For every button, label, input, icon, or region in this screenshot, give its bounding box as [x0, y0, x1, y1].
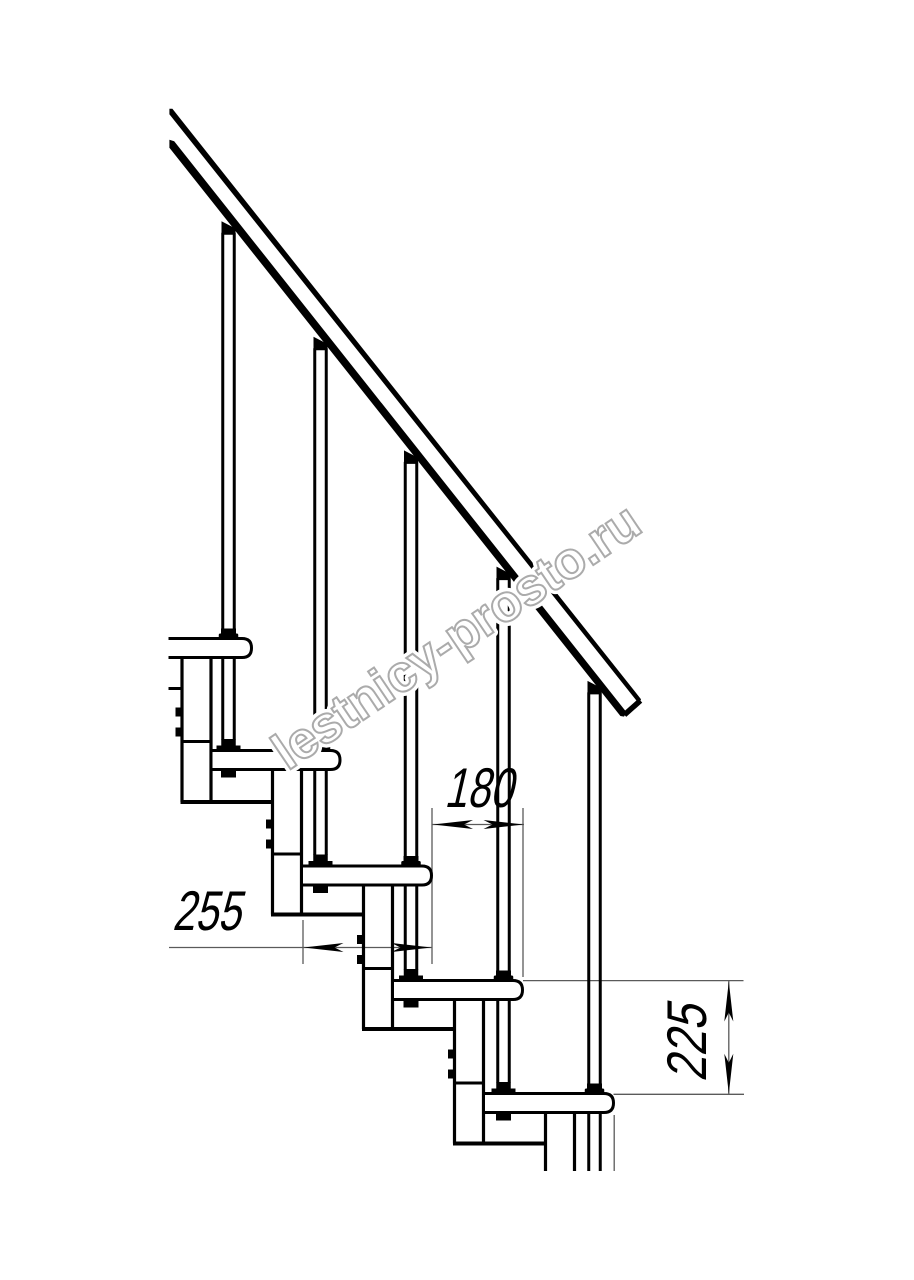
svg-text:255: 255	[169, 879, 252, 942]
svg-text:225: 225	[656, 994, 718, 1085]
svg-text:180: 180	[441, 756, 524, 819]
